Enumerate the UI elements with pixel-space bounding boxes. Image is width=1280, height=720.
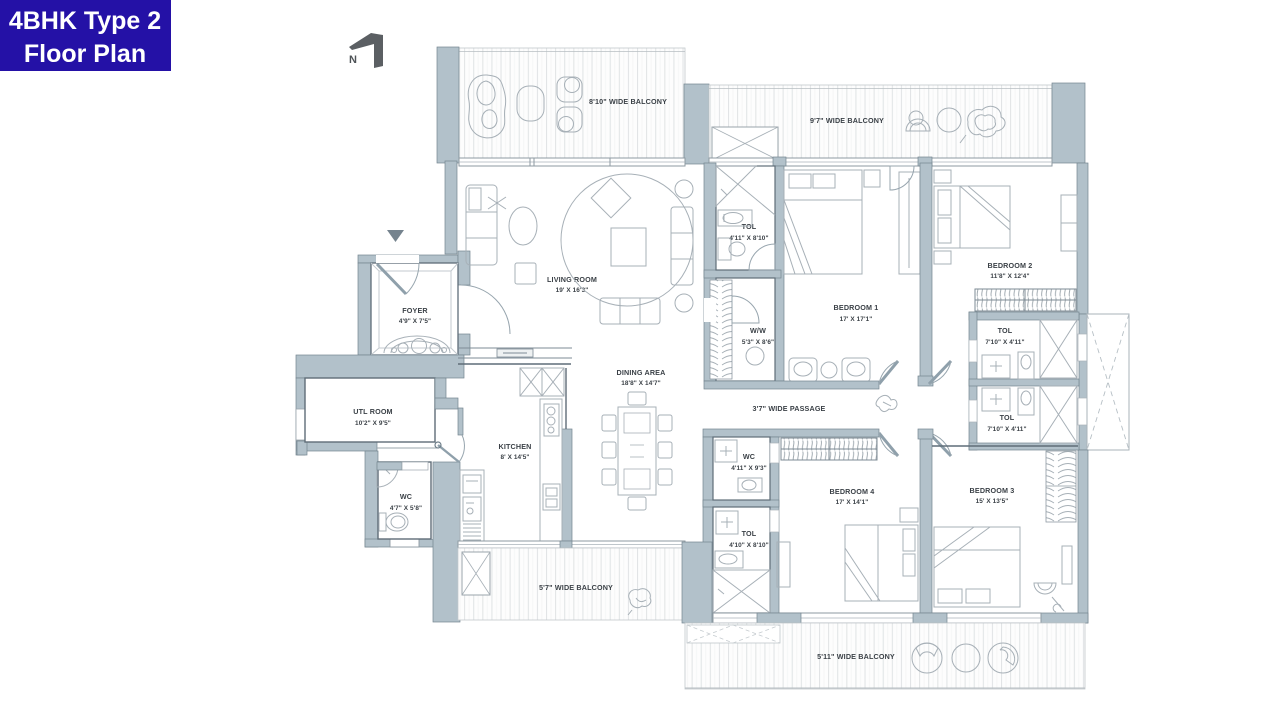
svg-text:BEDROOM 1: BEDROOM 1 xyxy=(834,303,879,312)
svg-text:8' X 14'5": 8' X 14'5" xyxy=(500,454,529,461)
svg-text:11'8" X 12'4": 11'8" X 12'4" xyxy=(990,273,1029,280)
svg-text:DINING AREA: DINING AREA xyxy=(617,368,666,377)
svg-text:5'11" WIDE BALCONY: 5'11" WIDE BALCONY xyxy=(817,652,895,661)
svg-text:7'10" X 4'11": 7'10" X 4'11" xyxy=(985,339,1024,346)
svg-text:BEDROOM 4: BEDROOM 4 xyxy=(830,487,875,496)
svg-text:TOL: TOL xyxy=(998,326,1013,335)
svg-text:WC: WC xyxy=(743,452,755,461)
svg-text:19' X 16'3": 19' X 16'3" xyxy=(556,287,589,294)
svg-text:N: N xyxy=(349,54,357,66)
svg-text:Floor Plan: Floor Plan xyxy=(24,40,146,68)
svg-text:TOL: TOL xyxy=(742,529,757,538)
svg-text:18'8" X 14'7": 18'8" X 14'7" xyxy=(621,380,661,387)
svg-text:15' X 13'5": 15' X 13'5" xyxy=(976,498,1009,505)
svg-text:4BHK Type 2: 4BHK Type 2 xyxy=(9,7,161,35)
svg-text:BEDROOM 3: BEDROOM 3 xyxy=(970,486,1015,495)
svg-text:3'7" WIDE PASSAGE: 3'7" WIDE PASSAGE xyxy=(752,404,825,413)
svg-text:W/W: W/W xyxy=(750,326,766,335)
svg-text:4'7" X 5'8": 4'7" X 5'8" xyxy=(390,505,422,512)
svg-text:4'11" X 9'3": 4'11" X 9'3" xyxy=(731,465,767,472)
svg-text:4'11" X 8'10": 4'11" X 8'10" xyxy=(729,235,768,242)
svg-text:WC: WC xyxy=(400,492,412,501)
svg-text:4'9" X 7'5": 4'9" X 7'5" xyxy=(399,318,431,325)
svg-text:9'7" WIDE BALCONY: 9'7" WIDE BALCONY xyxy=(810,116,884,125)
svg-text:KITCHEN: KITCHEN xyxy=(499,442,532,451)
svg-text:TOL: TOL xyxy=(1000,413,1015,422)
svg-text:8'10" WIDE BALCONY: 8'10" WIDE BALCONY xyxy=(589,97,667,106)
svg-text:17' X 14'1": 17' X 14'1" xyxy=(836,499,869,506)
svg-text:10'2" X 9'5": 10'2" X 9'5" xyxy=(355,420,391,427)
svg-text:4'10" X 8'10": 4'10" X 8'10" xyxy=(729,542,769,549)
svg-text:7'10" X 4'11": 7'10" X 4'11" xyxy=(987,426,1026,433)
svg-text:FOYER: FOYER xyxy=(402,306,428,315)
svg-text:5'7" WIDE BALCONY: 5'7" WIDE BALCONY xyxy=(539,583,613,592)
svg-text:5'3" X 8'6": 5'3" X 8'6" xyxy=(742,339,774,346)
svg-text:UTL ROOM: UTL ROOM xyxy=(353,407,392,416)
svg-text:BEDROOM 2: BEDROOM 2 xyxy=(988,261,1033,270)
svg-text:17' X 17'1": 17' X 17'1" xyxy=(840,316,873,323)
